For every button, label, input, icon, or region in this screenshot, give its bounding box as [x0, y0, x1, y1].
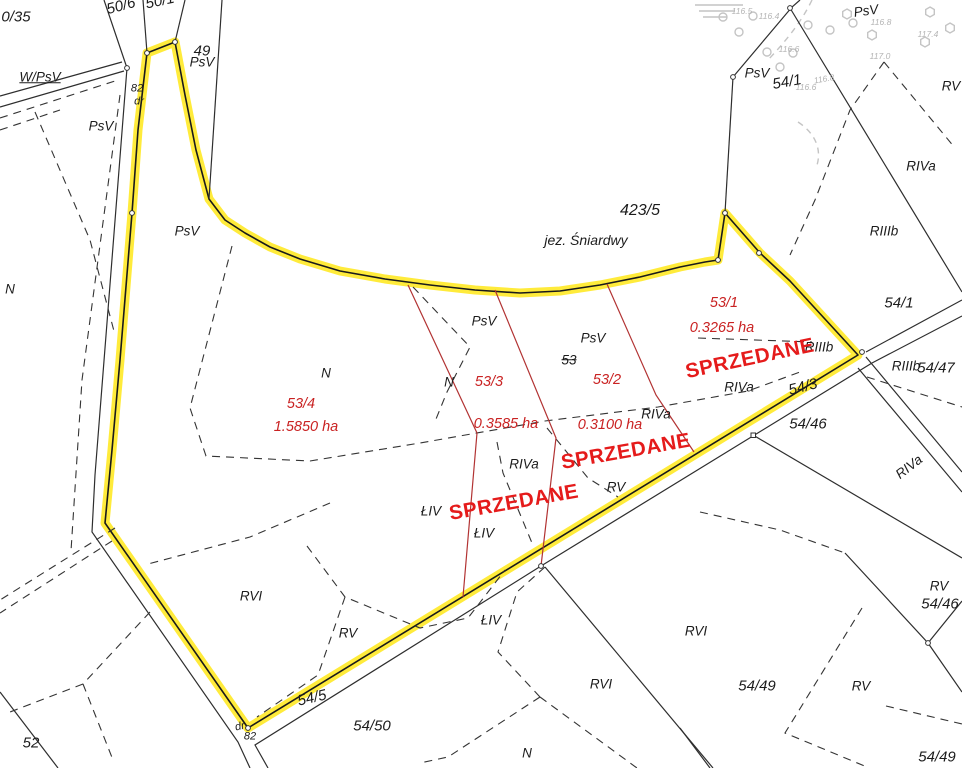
map-label-rv: RV [607, 480, 626, 494]
map-label-54-5: 54/5 [296, 687, 328, 708]
map-label-50-1: 50/1 [144, 0, 176, 11]
map-label-50-6: 50/6 [105, 0, 137, 17]
map-label-53-4: 53/4 [287, 397, 315, 412]
map-label-116-6: 116.6 [779, 45, 800, 54]
map-label-53-2: 53/2 [593, 373, 621, 388]
map-label-n: N [444, 375, 454, 389]
map-label-0-3585-ha: 0.3585 ha [474, 417, 539, 432]
map-label-psv: PsV [175, 224, 200, 238]
map-label-riiib: RIIIb [892, 359, 921, 373]
map-label-82: 82 [244, 732, 256, 743]
map-label-53-3: 53/3 [475, 375, 503, 390]
map-label-54-46: 54/46 [921, 597, 959, 612]
map-label-rv: RV [930, 579, 949, 593]
map-label-54-47: 54/47 [917, 361, 955, 376]
map-label-łiv: ŁIV [421, 504, 441, 518]
map-label-82: 82 [131, 84, 143, 95]
map-labels-layer: 0/3550/650/1W/PsV82dr49PsVPsVPsVN423/5je… [0, 0, 962, 768]
map-label-n: N [5, 282, 15, 296]
map-label-rv: RV [339, 626, 358, 640]
cadastral-map: 0/3550/650/1W/PsV82dr49PsVPsVPsVN423/5je… [0, 0, 962, 768]
map-label-rvi: RVI [685, 624, 707, 638]
map-label-53-1: 53/1 [710, 296, 738, 311]
map-label-0-3100-ha: 0.3100 ha [578, 418, 643, 433]
map-label-117-0: 117.0 [870, 52, 891, 61]
map-label-54-49: 54/49 [738, 679, 776, 694]
map-label-54-3: 54/3 [787, 376, 819, 398]
map-label-łiv: ŁIV [481, 613, 501, 627]
map-label-rv: RV [852, 679, 871, 693]
map-label-psv: PsV [190, 55, 215, 69]
map-label-1-5850-ha: 1.5850 ha [274, 420, 339, 435]
map-label-116-4: 116.4 [759, 12, 780, 21]
map-label-riiib: RIIIb [870, 224, 899, 238]
map-label-łiv: ŁIV [474, 526, 494, 540]
map-label-117-4: 117.4 [918, 30, 939, 39]
map-label-sprzedane: SPRZEDANE [684, 335, 816, 382]
map-label-jez-śniardwy: jez. Śniardwy [544, 233, 627, 247]
map-label-54-49: 54/49 [918, 750, 956, 765]
map-label-0-3265-ha: 0.3265 ha [690, 321, 755, 336]
map-label-n: N [321, 366, 331, 380]
map-label-0-35: 0/35 [1, 10, 30, 25]
map-label-rvi: RVI [590, 677, 612, 691]
map-label-52: 52 [23, 736, 40, 751]
map-label-rv: RV [942, 79, 961, 93]
map-label-psv: PsV [581, 331, 606, 345]
map-label-54-46: 54/46 [789, 417, 827, 432]
map-label-54-50: 54/50 [353, 719, 391, 734]
map-label-psv: PsV [745, 66, 770, 80]
map-label-116-8: 116.8 [871, 18, 892, 27]
map-label-54-1: 54/1 [884, 296, 913, 311]
map-label-riva: RIVa [509, 457, 539, 471]
map-label-riva: RIVa [906, 159, 936, 173]
map-label-dr: dr [134, 97, 144, 108]
map-label-riva: RIVa [641, 407, 671, 421]
map-label-sprzedane: SPRZEDANE [448, 482, 581, 525]
map-label-psv: PsV [89, 119, 114, 133]
map-label-rvi: RVI [240, 589, 262, 603]
map-label-423-5: 423/5 [620, 203, 660, 219]
map-label-riva: RIVa [724, 380, 754, 394]
map-label-116-5: 116.5 [732, 7, 753, 16]
map-label-psv: PsV [472, 314, 497, 328]
map-label-n: N [522, 746, 532, 760]
map-label-w-psv: W/PsV [19, 70, 60, 84]
map-label-sprzedane: SPRZEDANE [560, 431, 693, 474]
map-label-riva: RIVa [893, 453, 925, 482]
map-label-53: 53 [561, 353, 576, 367]
